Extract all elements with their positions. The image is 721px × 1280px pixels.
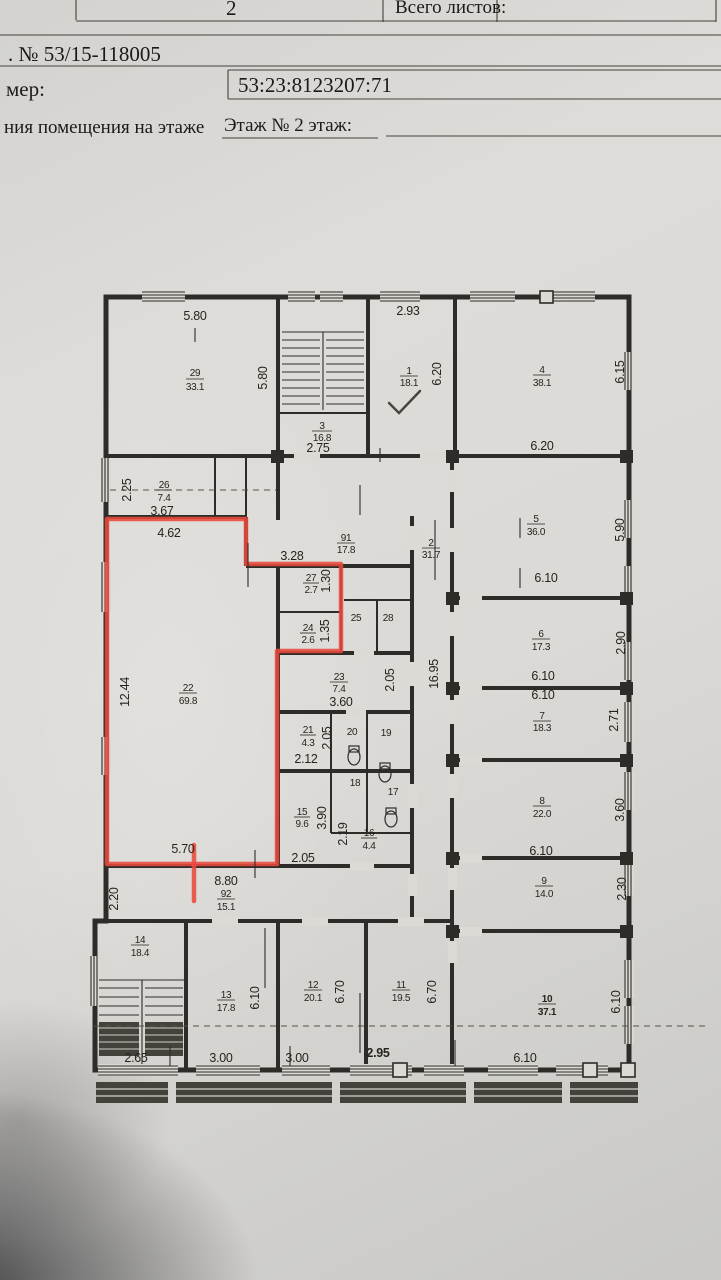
dim-610-rm6: 6.10 (531, 669, 554, 683)
room-3-number: 3 (319, 421, 325, 432)
room-13-number: 13 (221, 990, 232, 1001)
room-24-number: 24 (303, 623, 314, 634)
dim-135: 1.35 (318, 619, 332, 642)
dim-367: 3.67 (150, 504, 173, 518)
dim-610-rm10: 6.10 (609, 990, 623, 1013)
dim-670-rm11: 6.70 (425, 980, 439, 1003)
caption-text: ния помещения на этаже (4, 117, 204, 138)
dim-1244: 12.44 (118, 677, 132, 707)
dim-300-a: 3.00 (209, 1051, 232, 1065)
room-13-area: 17.8 (217, 1003, 236, 1014)
room-12-area: 20.1 (304, 993, 323, 1004)
dim-620-v: 6.20 (430, 362, 444, 385)
room-28-number: 28 (383, 613, 394, 624)
room-10-area: 37.1 (538, 1007, 557, 1018)
dim-225: 2.25 (120, 478, 134, 501)
room-29-number: 29 (190, 368, 201, 379)
room-5-number: 5 (533, 514, 539, 525)
dim-290: 2.90 (614, 631, 628, 654)
room-18-number: 18 (350, 778, 361, 789)
room-2-area: 31.7 (422, 550, 441, 561)
dim-300-b: 3.00 (285, 1051, 308, 1065)
dim-328: 3.28 (280, 549, 303, 563)
caption-floor-value: Этаж № 2 этаж: (224, 115, 352, 136)
room-24-area: 2.6 (301, 635, 315, 646)
room-8-area: 22.0 (533, 809, 552, 820)
room-21-number: 21 (303, 725, 314, 736)
dim-130: 1.30 (319, 569, 333, 592)
dim-205-rm23: 2.05 (383, 668, 397, 691)
room-91-number: 91 (341, 533, 352, 544)
total-sheets-label: Всего листов: (395, 0, 506, 18)
dim-615: 6.15 (613, 360, 627, 383)
dim-580-v: 5.80 (256, 366, 270, 389)
dim-610-rm7: 6.10 (531, 688, 554, 702)
room-20-number: 20 (347, 727, 358, 738)
dim-265: 2.65 (124, 1051, 147, 1065)
room-6-area: 17.3 (532, 642, 551, 653)
window-blocks (90, 291, 634, 1076)
room-8-number: 8 (539, 796, 545, 807)
foundation-band (96, 1082, 638, 1103)
room-22-area: 69.8 (179, 696, 198, 707)
dim-610-rm5: 6.10 (534, 571, 557, 585)
room-6-number: 6 (538, 629, 544, 640)
room-27-area: 2.7 (304, 585, 318, 596)
dim-590: 5.90 (613, 518, 627, 541)
room-22-number: 22 (183, 683, 194, 694)
room-19-number: 19 (381, 728, 392, 739)
room-25-number: 25 (351, 613, 362, 624)
doc-number: . № 53/15-118005 (8, 42, 161, 66)
room-1-area: 18.1 (400, 378, 419, 389)
dim-271: 2.71 (607, 708, 621, 731)
floor-plan-svg: 2 Всего листов: . № 53/15-118005 мер: 53… (0, 0, 721, 1280)
dim-360-v: 3.60 (613, 798, 627, 821)
dim-620-h: 6.20 (530, 439, 553, 453)
room-4-number: 4 (539, 365, 545, 376)
room-4-area: 38.1 (533, 378, 552, 389)
room-14-area: 18.4 (131, 948, 150, 959)
dim-610-bottom: 6.10 (513, 1051, 536, 1065)
dim-570: 5.70 (171, 842, 194, 856)
checkmark-annotation (389, 391, 420, 413)
dim-205-h: 2.05 (291, 851, 314, 865)
room-26-number: 26 (159, 480, 170, 491)
dim-670-rm12: 6.70 (333, 980, 347, 1003)
room-91-area: 17.8 (337, 545, 356, 556)
room-10-number: 10 (542, 994, 553, 1005)
room-11-area: 19.5 (392, 993, 411, 1004)
room-23-area: 7.4 (332, 684, 346, 695)
room-21-area: 4.3 (301, 738, 315, 749)
room-23-number: 23 (334, 672, 345, 683)
room-1-number: 1 (406, 366, 412, 377)
room-17-number: 17 (388, 787, 399, 798)
room-26-area: 7.4 (157, 493, 171, 504)
dim-220: 2.20 (107, 887, 121, 910)
room-92-area: 15.1 (217, 902, 236, 913)
room-15-number: 15 (297, 807, 308, 818)
room-7-number: 7 (539, 711, 545, 722)
room-16-area: 4.4 (362, 841, 376, 852)
dim-1695: 16.95 (427, 659, 441, 689)
room-2-number: 2 (428, 538, 434, 549)
page-number: 2 (226, 0, 237, 20)
room-15-area: 9.6 (295, 819, 309, 830)
room-29-area: 33.1 (186, 382, 205, 393)
dim-219: 2.19 (336, 822, 350, 845)
room-92-number: 92 (221, 889, 232, 900)
dim-360-h: 3.60 (329, 695, 352, 709)
dim-295: 2.95 (366, 1046, 389, 1060)
dim-462: 4.62 (157, 526, 180, 540)
staircase-top (282, 332, 364, 410)
dim-230: 2.30 (615, 877, 629, 900)
room-9-area: 14.0 (535, 889, 554, 900)
dim-293: 2.93 (396, 304, 419, 318)
dim-275: 2.75 (306, 441, 329, 455)
dim-205-rm21: 2.05 (320, 726, 334, 749)
cadastral-number: 53:23:8123207:71 (238, 73, 392, 97)
room-16-number: 16 (364, 828, 375, 839)
cadastral-field-label: мер: (6, 77, 45, 101)
room-5-area: 36.0 (527, 527, 546, 538)
dim-610-rm13: 6.10 (248, 986, 262, 1009)
scanned-document-photo: 2 Всего листов: . № 53/15-118005 мер: 53… (0, 0, 721, 1280)
room-12-number: 12 (308, 980, 319, 991)
room-14-number: 14 (135, 935, 146, 946)
room-7-area: 18.3 (533, 723, 552, 734)
dim-580-top: 5.80 (183, 309, 206, 323)
room-11-number: 11 (396, 980, 407, 991)
dim-610-rm9: 6.10 (529, 844, 552, 858)
room-27-number: 27 (306, 573, 317, 584)
room-9-number: 9 (541, 876, 547, 887)
dim-880: 8.80 (214, 874, 237, 888)
dim-212: 2.12 (294, 752, 317, 766)
dim-390: 3.90 (315, 806, 329, 829)
